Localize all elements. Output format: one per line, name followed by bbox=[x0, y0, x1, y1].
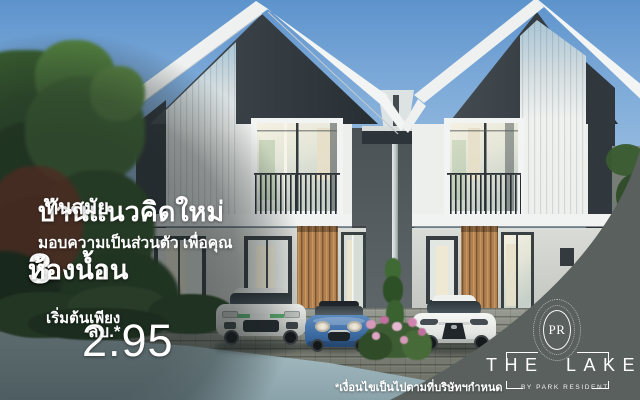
disclaimer: *เงื่อนไขเป็นไปตามที่บริษัทฯกำหนด bbox=[335, 378, 503, 396]
ad-banner: PR THE LAKE BY PARK RESIDENT บ้านแนวคิดใ… bbox=[0, 0, 640, 400]
price-unit: ลบ.* bbox=[88, 318, 121, 345]
headline-suffix: ทันสมัย bbox=[45, 196, 109, 220]
brand-monogram: PR bbox=[543, 310, 571, 350]
project-name: THE LAKE bbox=[486, 355, 640, 376]
bathrooms-label: ห้องน้ำ bbox=[28, 248, 109, 291]
brand-byline: BY PARK RESIDENT bbox=[521, 384, 593, 391]
